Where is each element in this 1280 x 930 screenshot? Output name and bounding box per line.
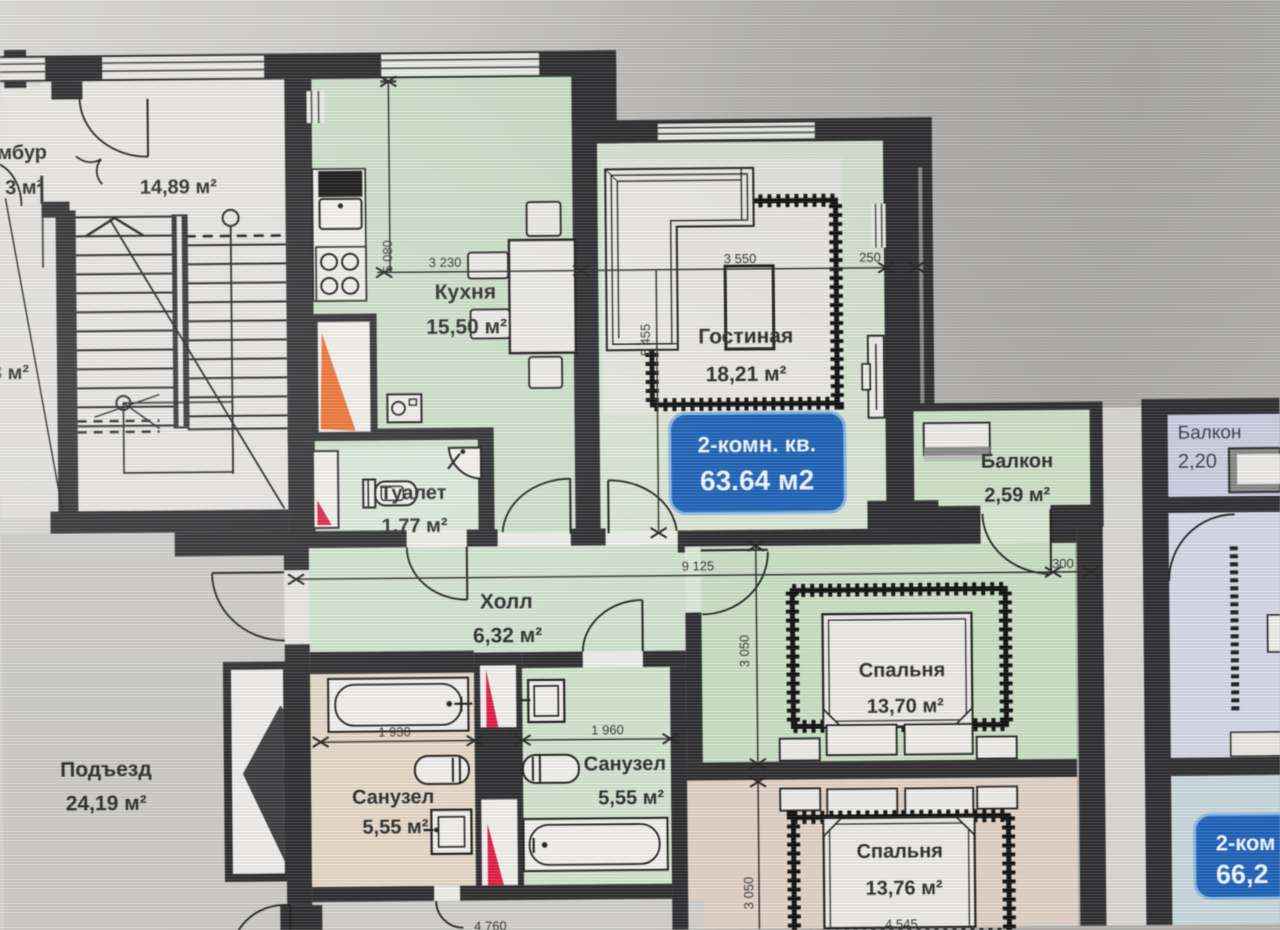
svg-text:2-ком: 2-ком	[1216, 830, 1276, 856]
svg-text:2,59 м²: 2,59 м²	[984, 484, 1050, 507]
svg-text:Санузел: Санузел	[584, 753, 666, 776]
svg-text:9 125: 9 125	[682, 558, 715, 573]
svg-text:3 050: 3 050	[737, 635, 752, 668]
svg-text:24,19 м²: 24,19 м²	[66, 792, 147, 816]
svg-text:1 930: 1 930	[378, 724, 411, 739]
svg-text:3 м²: 3 м²	[5, 177, 44, 199]
svg-text:1 960: 1 960	[591, 722, 624, 737]
svg-text:63.64 м2: 63.64 м2	[700, 464, 814, 496]
svg-text:Спальня: Спальня	[859, 659, 946, 682]
svg-text:2-комн. кв.: 2-комн. кв.	[697, 431, 816, 457]
svg-text:576: 576	[489, 725, 511, 740]
svg-text:3 м²: 3 м²	[0, 362, 30, 384]
svg-text:18,21 м²: 18,21 м²	[706, 363, 787, 387]
svg-text:300: 300	[1052, 556, 1074, 571]
svg-text:Балкон: Балкон	[981, 450, 1053, 473]
svg-text:66,2: 66,2	[1216, 859, 1269, 890]
svg-text:Тамбур: Тамбур	[0, 142, 47, 165]
svg-text:5,55 м²: 5,55 м²	[598, 787, 664, 810]
svg-text:5 455: 5 455	[638, 324, 653, 357]
svg-text:3 230: 3 230	[429, 255, 462, 270]
svg-text:Спальня: Спальня	[856, 840, 943, 863]
svg-text:4 760: 4 760	[474, 918, 507, 930]
svg-text:250: 250	[859, 250, 881, 265]
svg-text:Туалет: Туалет	[380, 482, 447, 505]
svg-text:5 080: 5 080	[380, 240, 395, 273]
svg-text:Санузел: Санузел	[352, 786, 434, 809]
svg-text:Кухня: Кухня	[435, 280, 497, 304]
svg-text:13,70 м²: 13,70 м²	[867, 695, 945, 718]
svg-text:Балкон: Балкон	[1178, 422, 1242, 444]
svg-text:13,76 м²: 13,76 м²	[865, 877, 943, 900]
svg-text:4 545: 4 545	[885, 916, 918, 930]
svg-text:3 050: 3 050	[741, 877, 756, 910]
svg-text:6,32 м²: 6,32 м²	[473, 624, 542, 648]
svg-text:Холл: Холл	[480, 590, 533, 614]
svg-text:Гостиная: Гостиная	[698, 325, 793, 349]
svg-text:5,55 м²: 5,55 м²	[362, 816, 428, 839]
svg-text:14,89 м²: 14,89 м²	[140, 176, 218, 199]
svg-text:1,77 м²: 1,77 м²	[382, 515, 448, 538]
svg-text:3 550: 3 550	[724, 251, 757, 266]
svg-text:2,20: 2,20	[1178, 450, 1217, 472]
svg-text:Подъезд: Подъезд	[60, 758, 152, 782]
svg-text:15,50 м²: 15,50 м²	[426, 315, 507, 339]
